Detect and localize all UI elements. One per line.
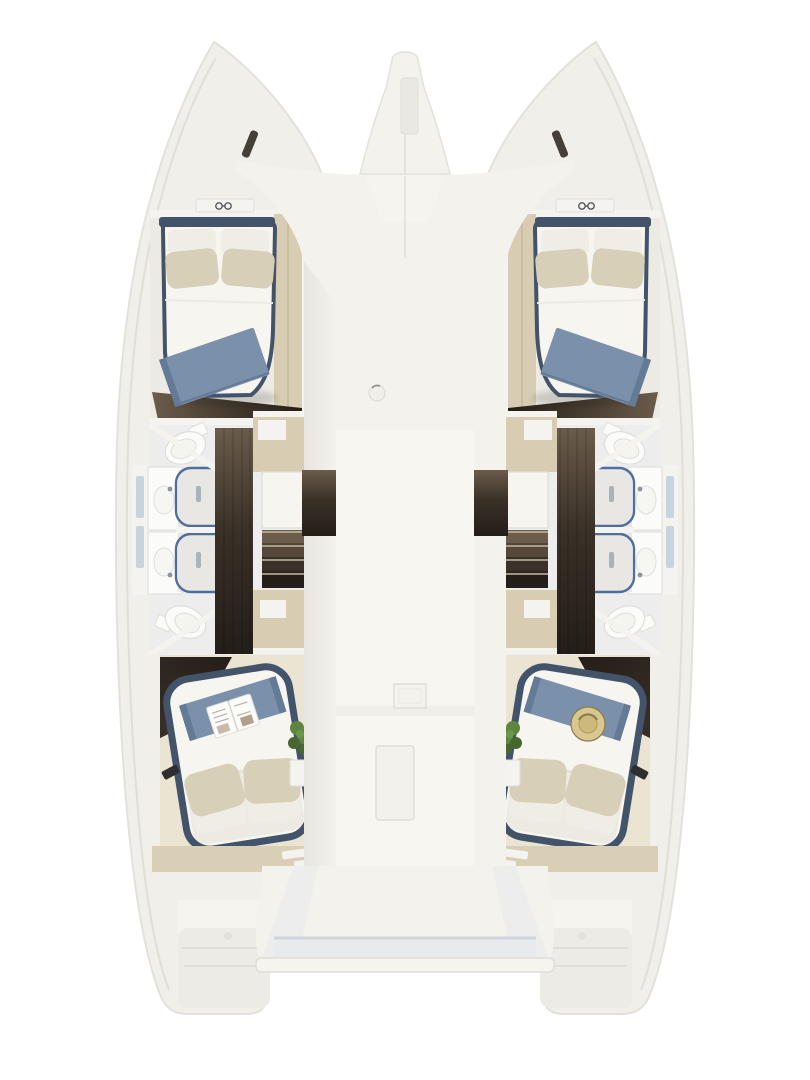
stairwell-starboard (474, 470, 508, 536)
platform-lip (256, 958, 554, 972)
floorplan-svg (0, 0, 810, 1080)
bowsprit-channel (401, 78, 418, 134)
deck-fitting-ring (369, 385, 385, 401)
catamaran-floorplan (0, 0, 810, 1080)
platform-shadow-band (274, 938, 536, 958)
tall-hatch (376, 746, 414, 820)
straw-hat (571, 707, 605, 741)
stern-platform (256, 866, 555, 972)
stairwell-port (302, 470, 336, 536)
